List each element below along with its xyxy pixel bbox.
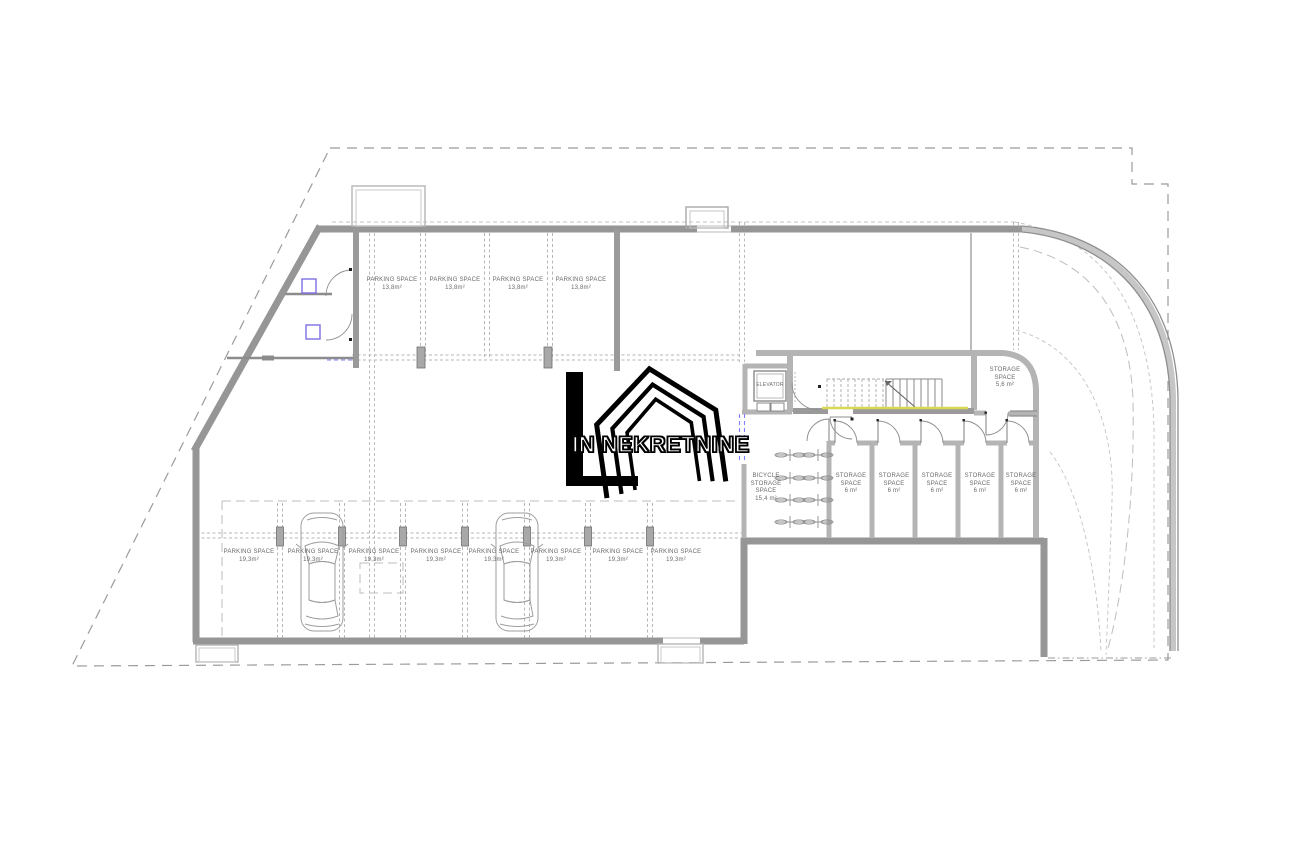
elevator-label: ELEVATOR [750,382,790,388]
logo-graphic [566,361,726,499]
floor-plan-canvas: PARKING SPACE13,8m² PARKING SPACE13,8m² … [0,0,1300,853]
watermark-text: IN NEKRETNINE [556,432,766,458]
shaft-outlines [196,186,728,663]
parking-dividers-top [421,233,553,357]
interior-walls [356,229,617,371]
grid-lines [196,222,1019,638]
staircase [822,379,968,408]
bicycle-symbols [775,449,833,528]
parked-car-2 [491,513,543,631]
storage-cells [744,413,1036,538]
utility-room-walls [227,294,354,358]
door-pivot-dots [349,268,1008,421]
electrical-boxes [302,279,320,339]
floor-plan-drawing [0,0,1300,853]
